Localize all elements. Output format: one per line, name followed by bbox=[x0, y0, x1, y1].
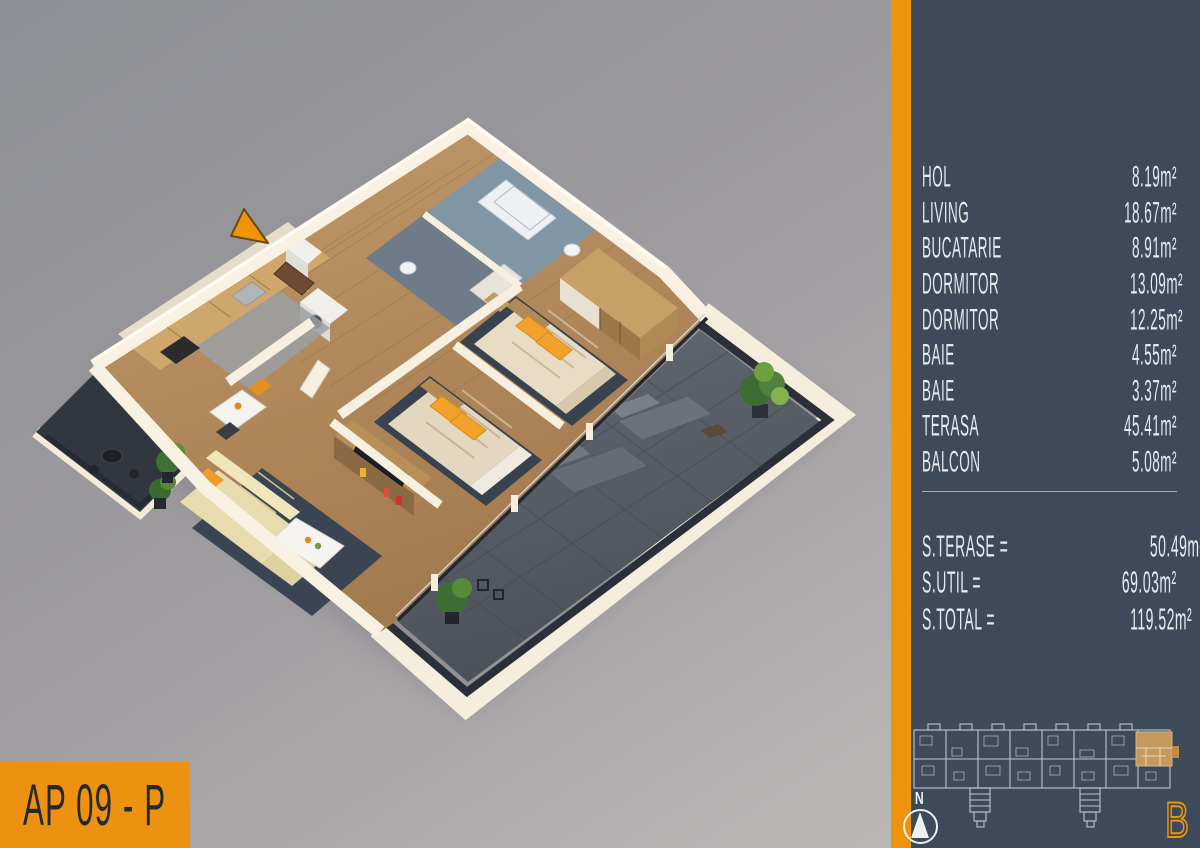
room-area-list: HOL8.19m² LIVING18.67m² BUCATARIE8.91m² … bbox=[922, 160, 1177, 480]
total-row: S.TERASE =50.49m² bbox=[922, 528, 1177, 565]
room-label: DORMITOR bbox=[922, 303, 999, 336]
room-area-value: 5.08m² bbox=[1132, 446, 1177, 479]
building-letter-badge: B bbox=[1161, 795, 1193, 843]
total-row: S.TOTAL =119.52m² bbox=[922, 601, 1177, 638]
total-label: S.TOTAL = bbox=[922, 602, 995, 637]
apartment-badge: AP 09 - P bbox=[0, 762, 190, 848]
entrance-direction-marker bbox=[231, 209, 268, 243]
compass-north-indicator: N bbox=[898, 789, 942, 844]
apartment-badge-label: AP 09 - P bbox=[23, 772, 166, 839]
building-room-details bbox=[920, 736, 1156, 780]
total-value: 119.52m² bbox=[1130, 602, 1192, 637]
room-label: BALCON bbox=[922, 446, 981, 479]
room-area-value: 13.09m² bbox=[1130, 268, 1183, 301]
room-area-value: 4.55m² bbox=[1132, 339, 1177, 372]
room-label: LIVING bbox=[922, 197, 969, 230]
highlighted-unit bbox=[1136, 732, 1179, 766]
brochure-page: AP 09 - P HOL8.19m² LIVING18.67m² BUCATA… bbox=[0, 0, 1200, 848]
area-panel: HOL8.19m² LIVING18.67m² BUCATARIE8.91m² … bbox=[911, 0, 1200, 848]
room-area-row: LIVING18.67m² bbox=[922, 196, 1177, 232]
room-area-value: 12.25m² bbox=[1130, 303, 1183, 336]
room-area-value: 8.19m² bbox=[1132, 161, 1177, 194]
room-area-row: TERASA45.41m² bbox=[922, 409, 1177, 445]
room-area-row: BUCATARIE8.91m² bbox=[922, 231, 1177, 267]
total-label: S.UTIL = bbox=[922, 566, 981, 601]
total-row: S.UTIL =69.03m² bbox=[922, 565, 1177, 602]
compass-north-label: N bbox=[915, 789, 925, 810]
compass-icon bbox=[903, 809, 938, 844]
totals-list: S.TERASE =50.49m² S.UTIL =69.03m² S.TOTA… bbox=[922, 528, 1177, 638]
stair-towers bbox=[970, 788, 1100, 827]
compass-needle-icon bbox=[911, 812, 929, 838]
room-label: TERASA bbox=[922, 410, 979, 443]
room-label: DORMITOR bbox=[922, 268, 999, 301]
room-label: HOL bbox=[922, 161, 951, 194]
room-label: BUCATARIE bbox=[922, 232, 1002, 265]
apartment-3d-render bbox=[0, 0, 911, 848]
room-area-row: BALCON5.08m² bbox=[922, 445, 1177, 481]
building-letter: B bbox=[1165, 795, 1189, 843]
room-area-row: BAIE4.55m² bbox=[922, 338, 1177, 374]
room-label: BAIE bbox=[922, 339, 955, 372]
room-area-row: BAIE3.37m² bbox=[922, 374, 1177, 410]
total-value: 69.03m² bbox=[1122, 566, 1177, 601]
room-label: BAIE bbox=[922, 375, 955, 408]
panel-divider bbox=[922, 491, 1177, 492]
room-area-value: 45.41m² bbox=[1124, 410, 1177, 443]
building-plan-thumbnail bbox=[908, 708, 1184, 834]
room-area-value: 8.91m² bbox=[1132, 232, 1177, 265]
floorplan-scene: AP 09 - P bbox=[0, 0, 911, 848]
room-area-row: DORMITOR13.09m² bbox=[922, 267, 1177, 303]
total-label: S.TERASE = bbox=[922, 529, 1008, 564]
room-area-row: DORMITOR12.25m² bbox=[922, 302, 1177, 338]
room-area-row: HOL8.19m² bbox=[922, 160, 1177, 196]
room-area-value: 18.67m² bbox=[1124, 197, 1177, 230]
room-area-value: 3.37m² bbox=[1132, 375, 1177, 408]
total-value: 50.49m² bbox=[1149, 529, 1200, 564]
